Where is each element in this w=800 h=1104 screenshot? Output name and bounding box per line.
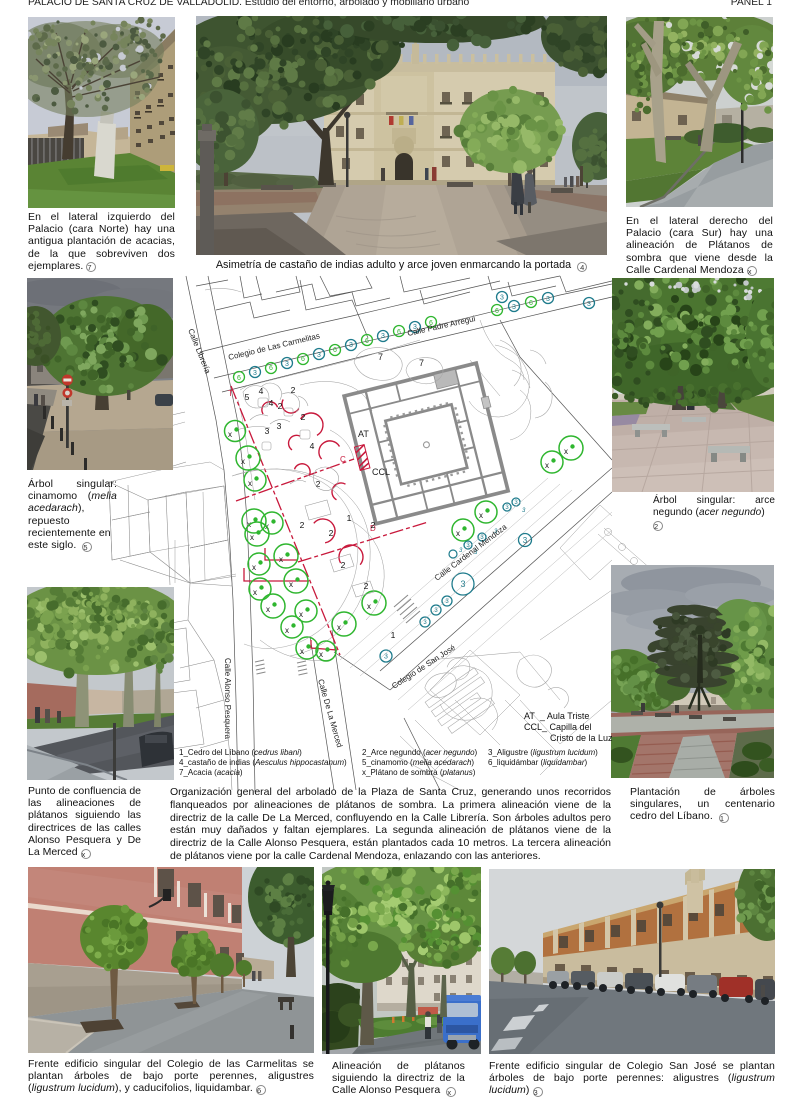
svg-text:x: x (241, 457, 245, 466)
svg-text:x: x (564, 447, 568, 456)
svg-text:x: x (285, 626, 289, 635)
svg-text:3: 3 (523, 536, 528, 545)
svg-text:x: x (319, 650, 323, 659)
svg-text:2: 2 (300, 520, 305, 530)
svg-text:3: 3 (265, 426, 270, 436)
svg-text:Calle Alonso Pesquera: Calle Alonso Pesquera (223, 658, 232, 739)
svg-text:x: x (289, 580, 293, 589)
svg-text:C: C (340, 455, 346, 464)
svg-text:x: x (337, 623, 341, 632)
svg-text:2: 2 (329, 528, 334, 538)
svg-text:6: 6 (301, 356, 305, 363)
svg-text:2: 2 (278, 401, 283, 411)
svg-text:7: 7 (419, 358, 424, 368)
svg-text:3: 3 (317, 352, 321, 359)
svg-text:6: 6 (495, 308, 499, 315)
svg-text:3: 3 (285, 361, 289, 368)
svg-text:2: 2 (301, 412, 306, 422)
svg-text:3: 3 (512, 304, 516, 311)
svg-text:6: 6 (333, 347, 337, 354)
svg-text:3: 3 (445, 599, 449, 605)
svg-text:6: 6 (397, 329, 401, 336)
svg-text:3: 3 (349, 342, 353, 349)
svg-text:x: x (253, 588, 257, 597)
svg-text:3: 3 (423, 620, 427, 626)
svg-text:3: 3 (546, 296, 550, 303)
svg-text:6: 6 (529, 300, 533, 307)
svg-text:x: x (266, 605, 270, 614)
svg-text:2: 2 (371, 520, 376, 530)
svg-text:3: 3 (500, 295, 504, 302)
svg-text:Calle Padre Arregui: Calle Padre Arregui (406, 314, 476, 338)
svg-text:x: x (279, 555, 283, 564)
svg-text:3: 3 (277, 421, 282, 431)
svg-text:3: 3 (381, 333, 385, 340)
svg-text:4: 4 (310, 441, 315, 451)
svg-text:6: 6 (269, 365, 273, 372)
svg-text:x: x (299, 610, 303, 619)
svg-text:x: x (228, 430, 232, 439)
svg-text:3: 3 (253, 370, 257, 377)
svg-text:3: 3 (522, 508, 526, 514)
svg-text:6: 6 (237, 375, 241, 382)
svg-text:x: x (367, 602, 371, 611)
svg-text:x: x (456, 529, 460, 538)
svg-text:x: x (479, 511, 483, 520)
svg-text:T: T (228, 389, 233, 398)
svg-text:4: 4 (269, 398, 274, 408)
svg-text:7: 7 (378, 352, 383, 362)
svg-text:x: x (248, 479, 252, 488)
svg-text:6: 6 (365, 338, 369, 345)
svg-text:Colegio de Las Carmelitas: Colegio de Las Carmelitas (227, 331, 320, 362)
svg-text:x: x (252, 563, 256, 572)
svg-text:x: x (545, 461, 549, 470)
svg-text:x: x (250, 533, 254, 542)
svg-text:Calle De La Merced: Calle De La Merced (316, 678, 344, 748)
svg-text:Calle Cardenal Mendoza: Calle Cardenal Mendoza (433, 522, 509, 583)
svg-text:3: 3 (587, 301, 591, 308)
svg-text:x: x (300, 647, 304, 656)
svg-text:Calle Librería: Calle Librería (186, 327, 212, 375)
svg-text:CCL: CCL (372, 467, 390, 477)
svg-text:AT: AT (358, 429, 369, 439)
